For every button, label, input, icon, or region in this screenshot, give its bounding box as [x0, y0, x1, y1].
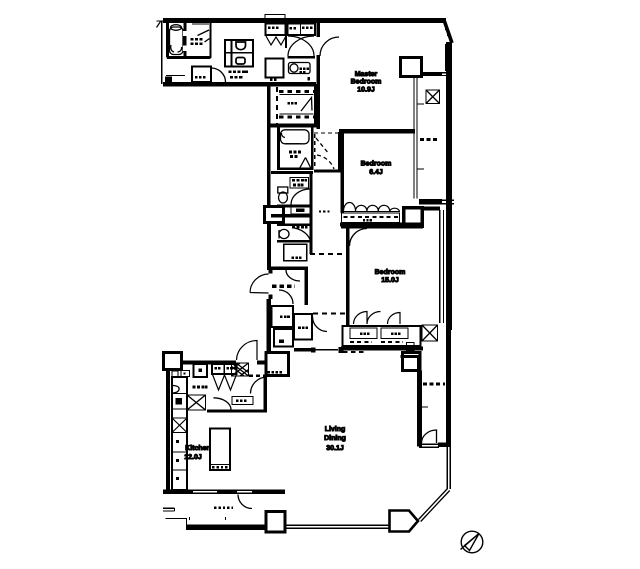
svg-text:Kitchen: Kitchen	[185, 444, 211, 452]
svg-text:10.9J: 10.9J	[357, 87, 375, 94]
svg-text:Dining: Dining	[324, 434, 346, 442]
svg-text:Master: Master	[355, 71, 378, 78]
svg-text:Living: Living	[325, 425, 346, 433]
svg-text:15.0J: 15.0J	[381, 277, 399, 284]
svg-text:Bedroom: Bedroom	[375, 268, 406, 276]
svg-text:12.0J: 12.0J	[184, 454, 202, 461]
svg-text:Bedroom: Bedroom	[361, 160, 392, 168]
svg-text:6.4J: 6.4J	[369, 169, 383, 176]
svg-text:30.1J: 30.1J	[326, 445, 344, 452]
svg-text:Bedroom: Bedroom	[351, 78, 382, 86]
